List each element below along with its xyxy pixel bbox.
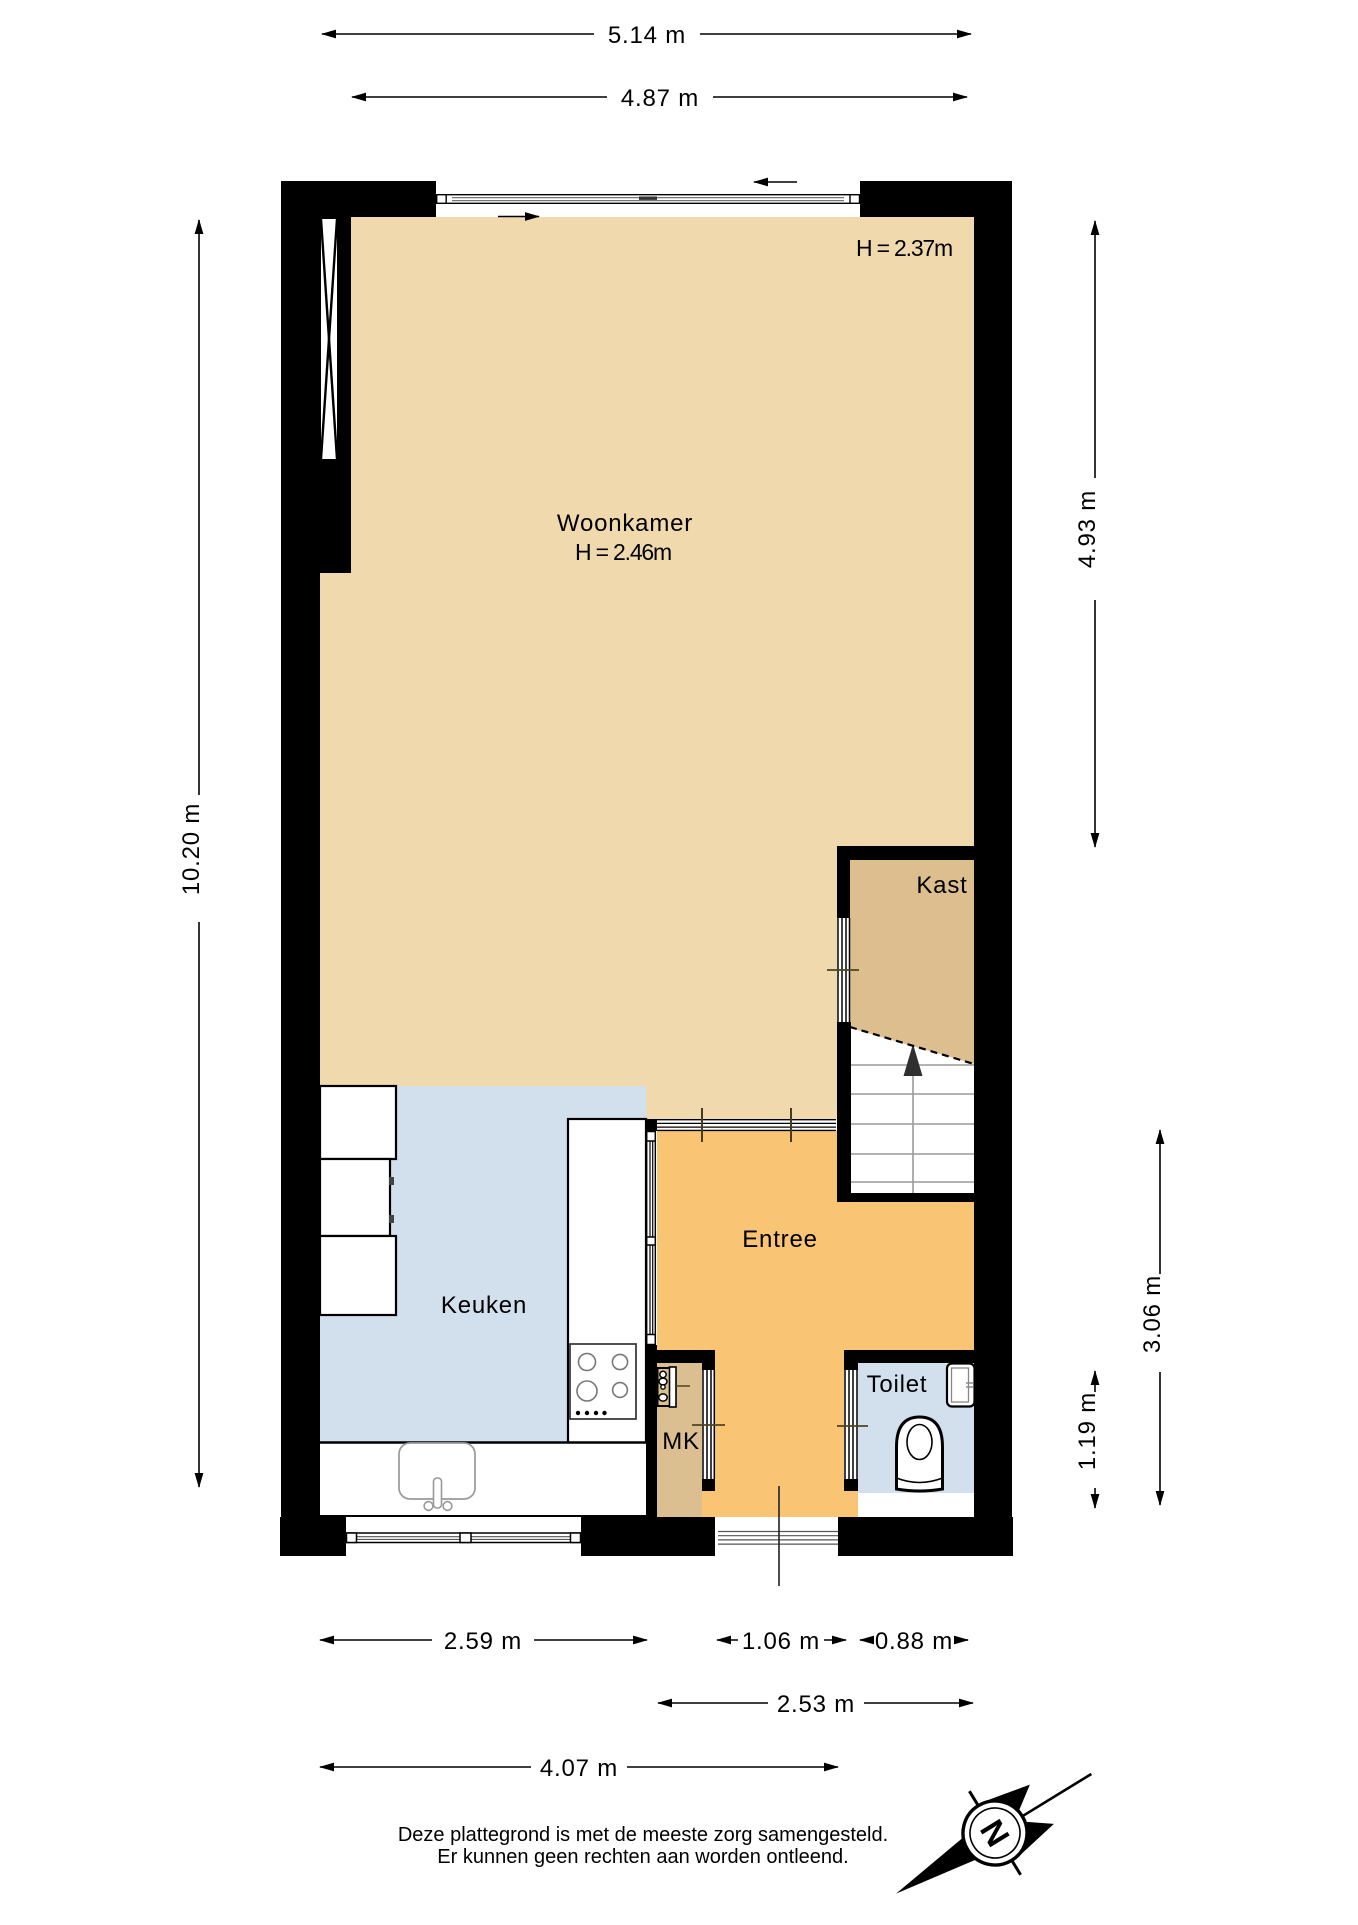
svg-text:1.06 m: 1.06 m: [742, 1628, 820, 1655]
svg-text:4.87 m: 4.87 m: [621, 85, 699, 112]
svg-text:1.19 m: 1.19 m: [1074, 1392, 1101, 1470]
svg-text:Deze plattegrond is met de mee: Deze plattegrond is met de meeste zorg s…: [398, 1824, 888, 1846]
svg-text:0.88 m: 0.88 m: [875, 1628, 953, 1655]
svg-text:4.07 m: 4.07 m: [540, 1755, 618, 1782]
svg-text:H = 2.37m: H = 2.37m: [856, 235, 952, 261]
svg-text:Er kunnen geen rechten aan wor: Er kunnen geen rechten aan worden ontlee…: [437, 1846, 848, 1868]
svg-text:4.93 m: 4.93 m: [1074, 490, 1101, 568]
svg-text:H = 2.46m: H = 2.46m: [575, 539, 671, 565]
svg-text:Entree: Entree: [742, 1226, 818, 1253]
svg-text:2.59 m: 2.59 m: [444, 1628, 522, 1655]
svg-text:3.06 m: 3.06 m: [1139, 1275, 1166, 1353]
svg-text:Keuken: Keuken: [441, 1292, 527, 1319]
svg-text:Kast: Kast: [916, 872, 967, 899]
svg-text:5.14 m: 5.14 m: [608, 22, 686, 49]
svg-text:MK: MK: [662, 1428, 700, 1455]
svg-text:Woonkamer: Woonkamer: [557, 510, 693, 537]
svg-text:2.53 m: 2.53 m: [777, 1691, 855, 1718]
svg-text:Toilet: Toilet: [867, 1371, 928, 1398]
svg-text:10.20 m: 10.20 m: [178, 803, 205, 895]
